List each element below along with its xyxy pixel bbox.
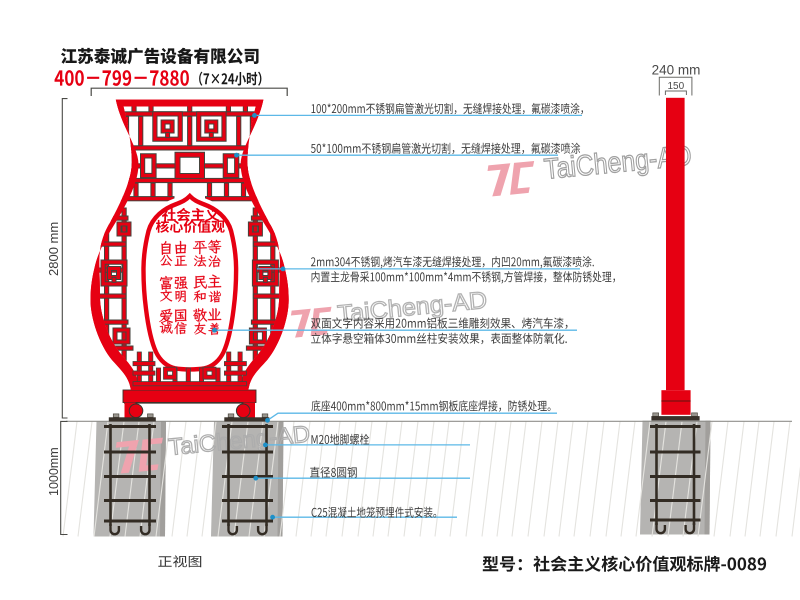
svg-text:240 mm: 240 mm (652, 63, 701, 78)
svg-text:2800 mm: 2800 mm (46, 222, 61, 276)
svg-text:150: 150 (667, 81, 684, 92)
svg-text:1000mm: 1000mm (47, 447, 61, 496)
